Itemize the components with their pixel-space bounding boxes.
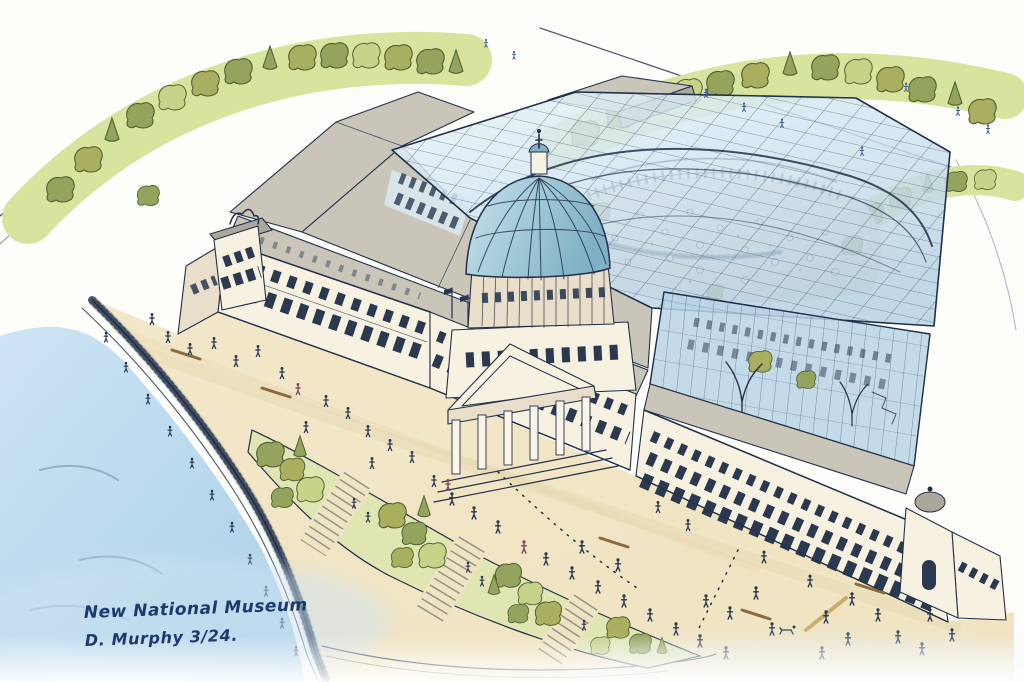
corner-dome-ornament <box>915 492 945 512</box>
museum-illustration: New National Museum D. Murphy 3/24. <box>0 0 1024 682</box>
